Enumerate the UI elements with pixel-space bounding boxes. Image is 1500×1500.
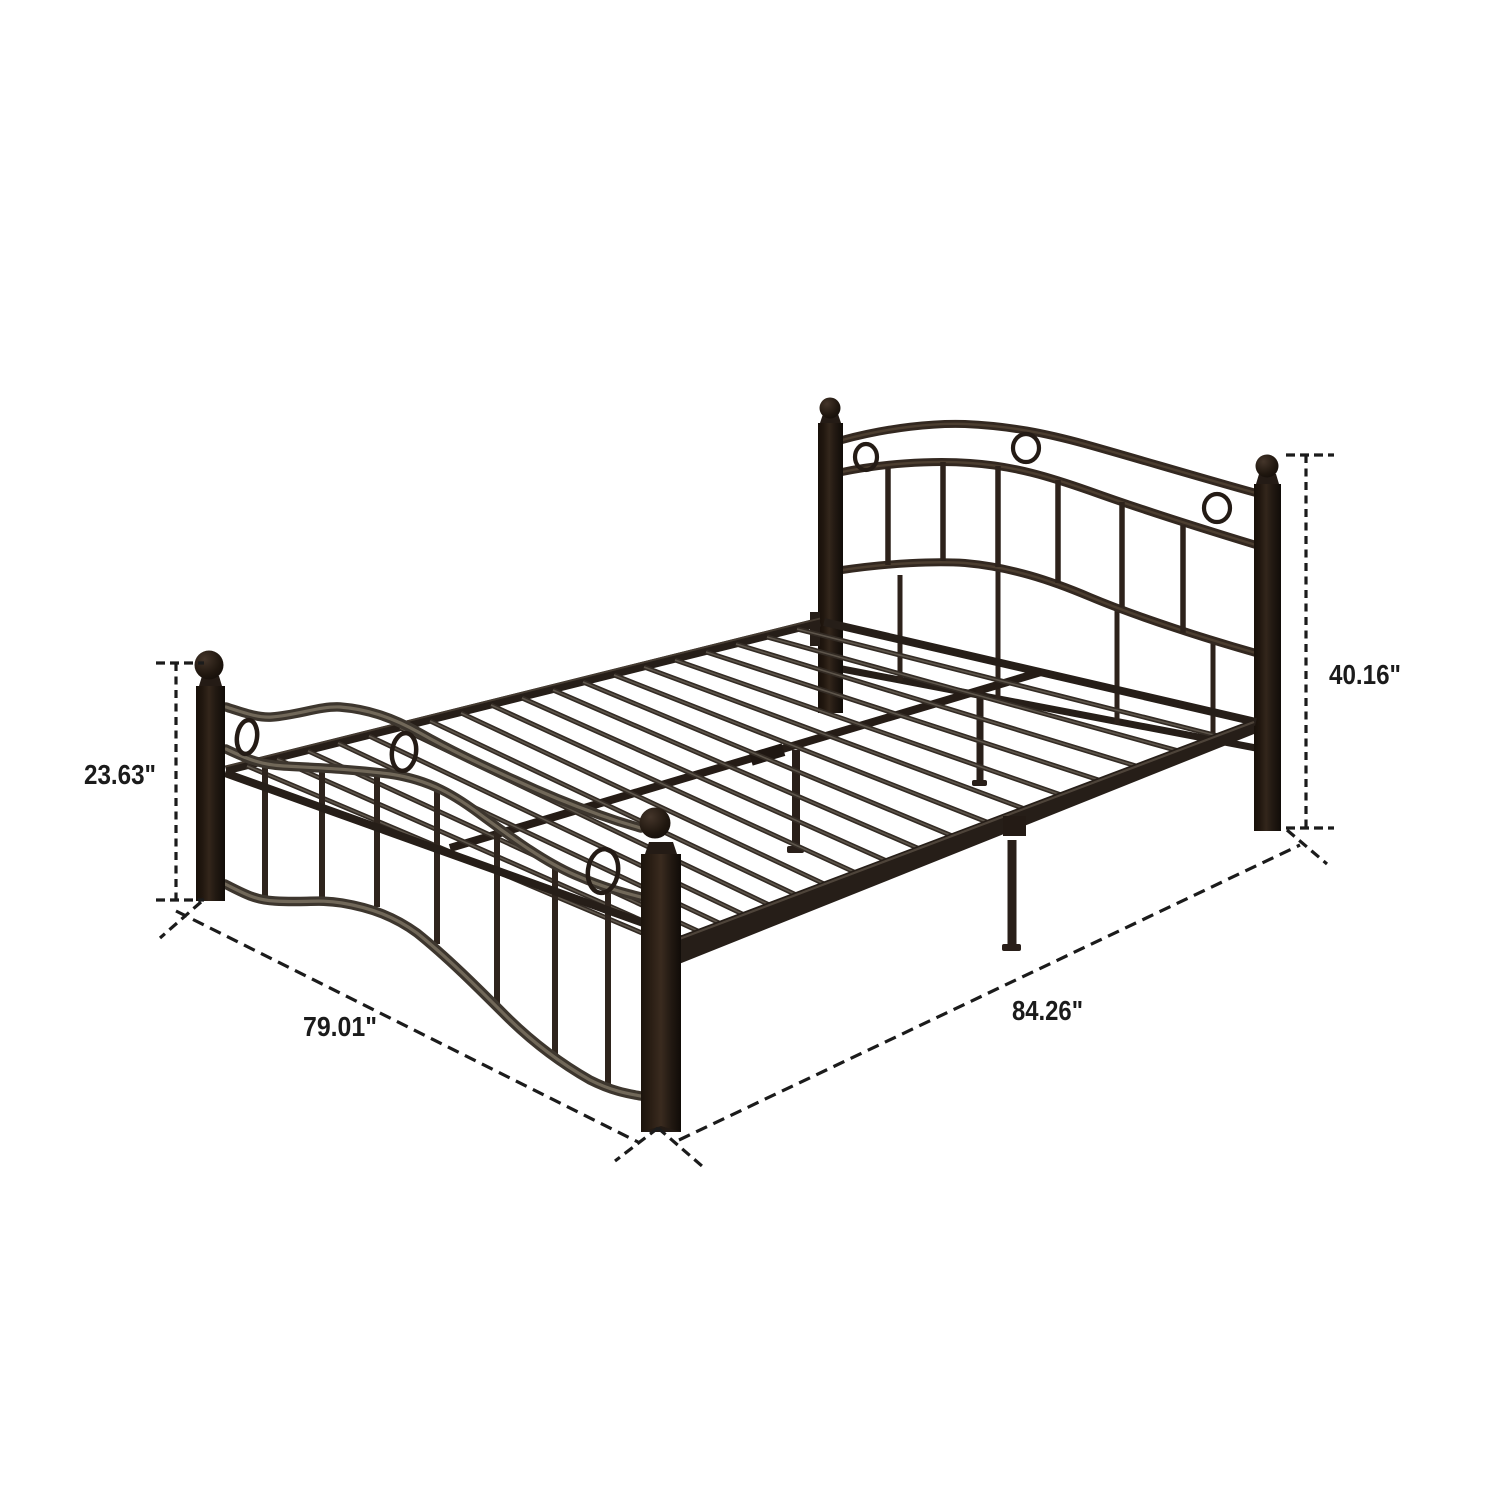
svg-text:23.63": 23.63": [84, 759, 156, 790]
svg-text:84.26": 84.26": [1012, 995, 1083, 1026]
svg-text:79.01": 79.01": [303, 1011, 377, 1042]
svg-text:40.16": 40.16": [1329, 659, 1401, 690]
